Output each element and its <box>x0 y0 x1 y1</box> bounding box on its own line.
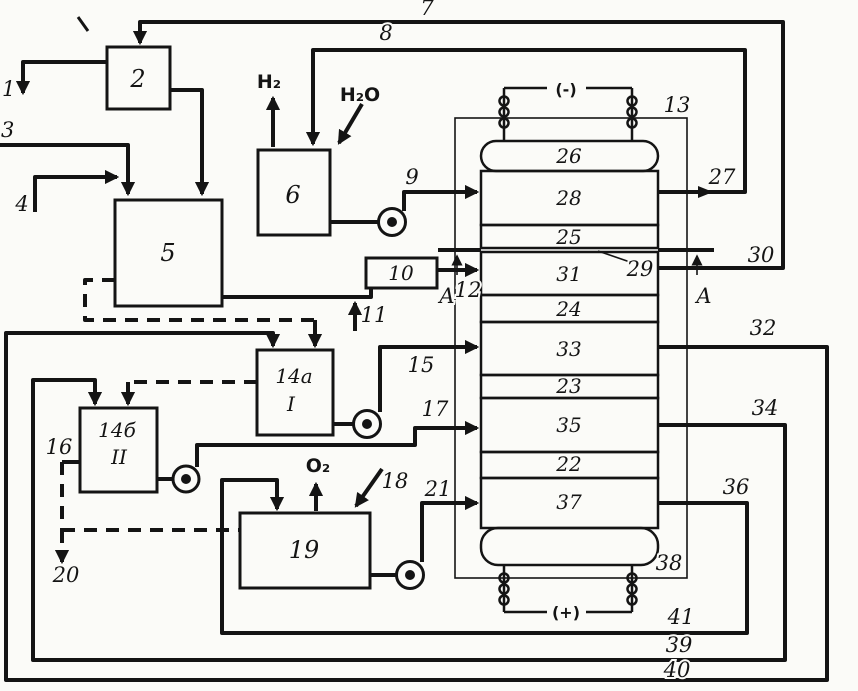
stream-label-30: 30 <box>748 243 775 267</box>
stream-label-32: 32 <box>750 316 777 340</box>
cut-label-29: 29 <box>626 257 654 281</box>
water-inlet <box>339 104 362 143</box>
stream-label-7: 7 <box>420 0 434 20</box>
stream-lines <box>0 22 827 680</box>
flow-diagram: 2 5 6 10 14a I 14б II 19 26 28 25 31 24 … <box>0 0 858 691</box>
dashed-b5-b14a <box>85 280 315 320</box>
stream-label-16: 16 <box>46 435 73 459</box>
column-section-label: 25 <box>555 225 581 249</box>
stream-label-17: 17 <box>422 397 449 421</box>
section-view-label-left: A <box>437 284 454 308</box>
stream-line-18 <box>356 469 382 506</box>
block-14a-roman: I <box>286 392 296 416</box>
stream-label-40: 40 <box>663 658 691 682</box>
column-section-label: 33 <box>556 337 581 361</box>
pipe-b2-b5 <box>170 90 202 194</box>
stream-line-1 <box>23 62 107 93</box>
column-section-label: 24 <box>555 297 581 321</box>
block-14a <box>257 350 333 435</box>
water-label: H₂O <box>340 84 380 106</box>
stream-label-18: 18 <box>382 469 409 493</box>
stream-label-4: 4 <box>14 192 28 216</box>
block-5-label: 5 <box>160 239 175 267</box>
stream-label-41: 41 <box>667 605 695 629</box>
stream-line-21 <box>422 503 477 562</box>
column-section-label: 22 <box>555 452 581 476</box>
block-2-label: 2 <box>129 65 145 93</box>
casing-label-13: 13 <box>664 93 691 117</box>
block-14a-label: 14a <box>275 364 312 388</box>
stream-label-27: 27 <box>708 165 736 189</box>
column-section-label: 37 <box>556 490 582 514</box>
column-section-label: 31 <box>556 262 581 286</box>
positive-electrode-label: (+) <box>552 603 580 622</box>
pumps <box>173 209 424 589</box>
section-view-label-right: A <box>694 284 711 308</box>
hydrogen-label: H₂ <box>257 71 281 93</box>
stream-label-15: 15 <box>408 353 435 377</box>
block-14b-label: 14б <box>98 418 136 442</box>
dashed-16-branch <box>62 462 239 530</box>
stream-line-4 <box>35 177 117 212</box>
labels: 2 5 6 10 14a I 14б II 19 26 28 25 31 24 … <box>1 0 778 682</box>
stream-label-39: 39 <box>666 633 693 657</box>
stream-label-34: 34 <box>752 396 779 420</box>
stream-label-36: 36 <box>723 475 750 499</box>
block-14b-roman: II <box>110 445 128 469</box>
block-6-label: 6 <box>285 181 300 209</box>
stream-label-1: 1 <box>2 77 15 101</box>
block-19-label: 19 <box>289 536 320 564</box>
column-section-label: 35 <box>556 413 581 437</box>
coil-icon <box>500 97 637 128</box>
stream-label-21: 21 <box>424 477 452 501</box>
column-section-label: 28 <box>555 186 581 210</box>
stream-line-3 <box>0 145 128 194</box>
pipe-b5-b10 <box>222 289 371 297</box>
column-bottom-cap <box>481 528 658 565</box>
bottom-label-38: 38 <box>656 551 683 575</box>
block-10-label: 10 <box>388 261 414 285</box>
stream-label-8: 8 <box>379 21 392 45</box>
negative-electrode-label: (-) <box>555 80 576 99</box>
stream-line-9 <box>404 192 477 211</box>
scan-mark <box>78 17 88 31</box>
stream-line-17 <box>197 428 477 467</box>
stream-label-12: 12 <box>455 278 482 302</box>
stream-label-3: 3 <box>1 118 14 142</box>
stream-label-9: 9 <box>405 165 418 189</box>
stream-label-11: 11 <box>361 303 388 327</box>
oxygen-label: O₂ <box>306 455 330 477</box>
stream-label-20: 20 <box>52 563 80 587</box>
column-section-label: 23 <box>555 374 581 398</box>
column-section-label: 26 <box>555 144 582 168</box>
